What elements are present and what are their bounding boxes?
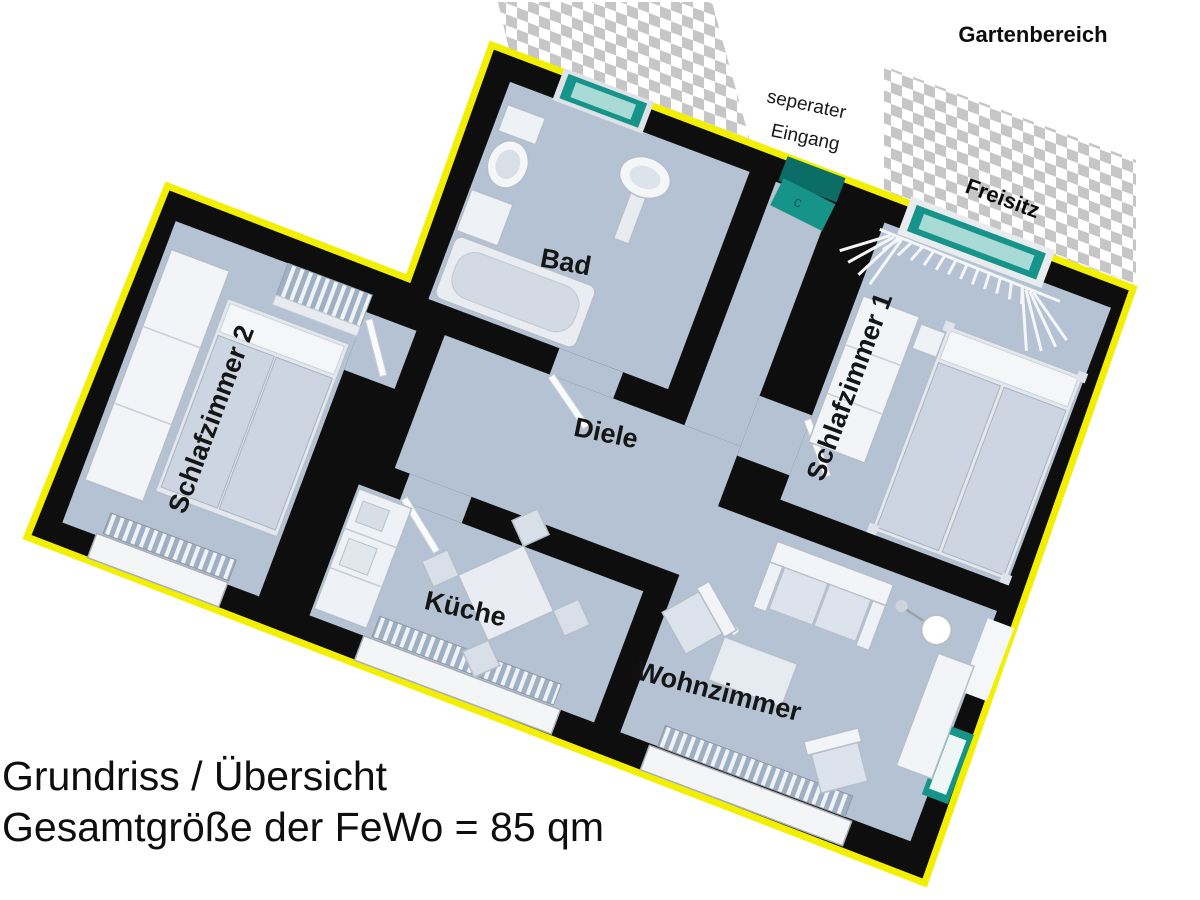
garden-label: Gartenbereich (958, 22, 1107, 47)
entrance-label-line1: seperater (765, 86, 849, 123)
floorplan-page: c (0, 0, 1200, 900)
plan-title-line2: Gesamtgröße der FeWo = 85 qm (2, 804, 604, 850)
plan-title: Grundriss / Übersicht Gesamtgröße der Fe… (2, 753, 604, 850)
floorplan-canvas: c (0, 0, 1200, 900)
plan-title-line1: Grundriss / Übersicht (2, 753, 388, 799)
entrance-label-line2: Eingang (769, 120, 842, 155)
